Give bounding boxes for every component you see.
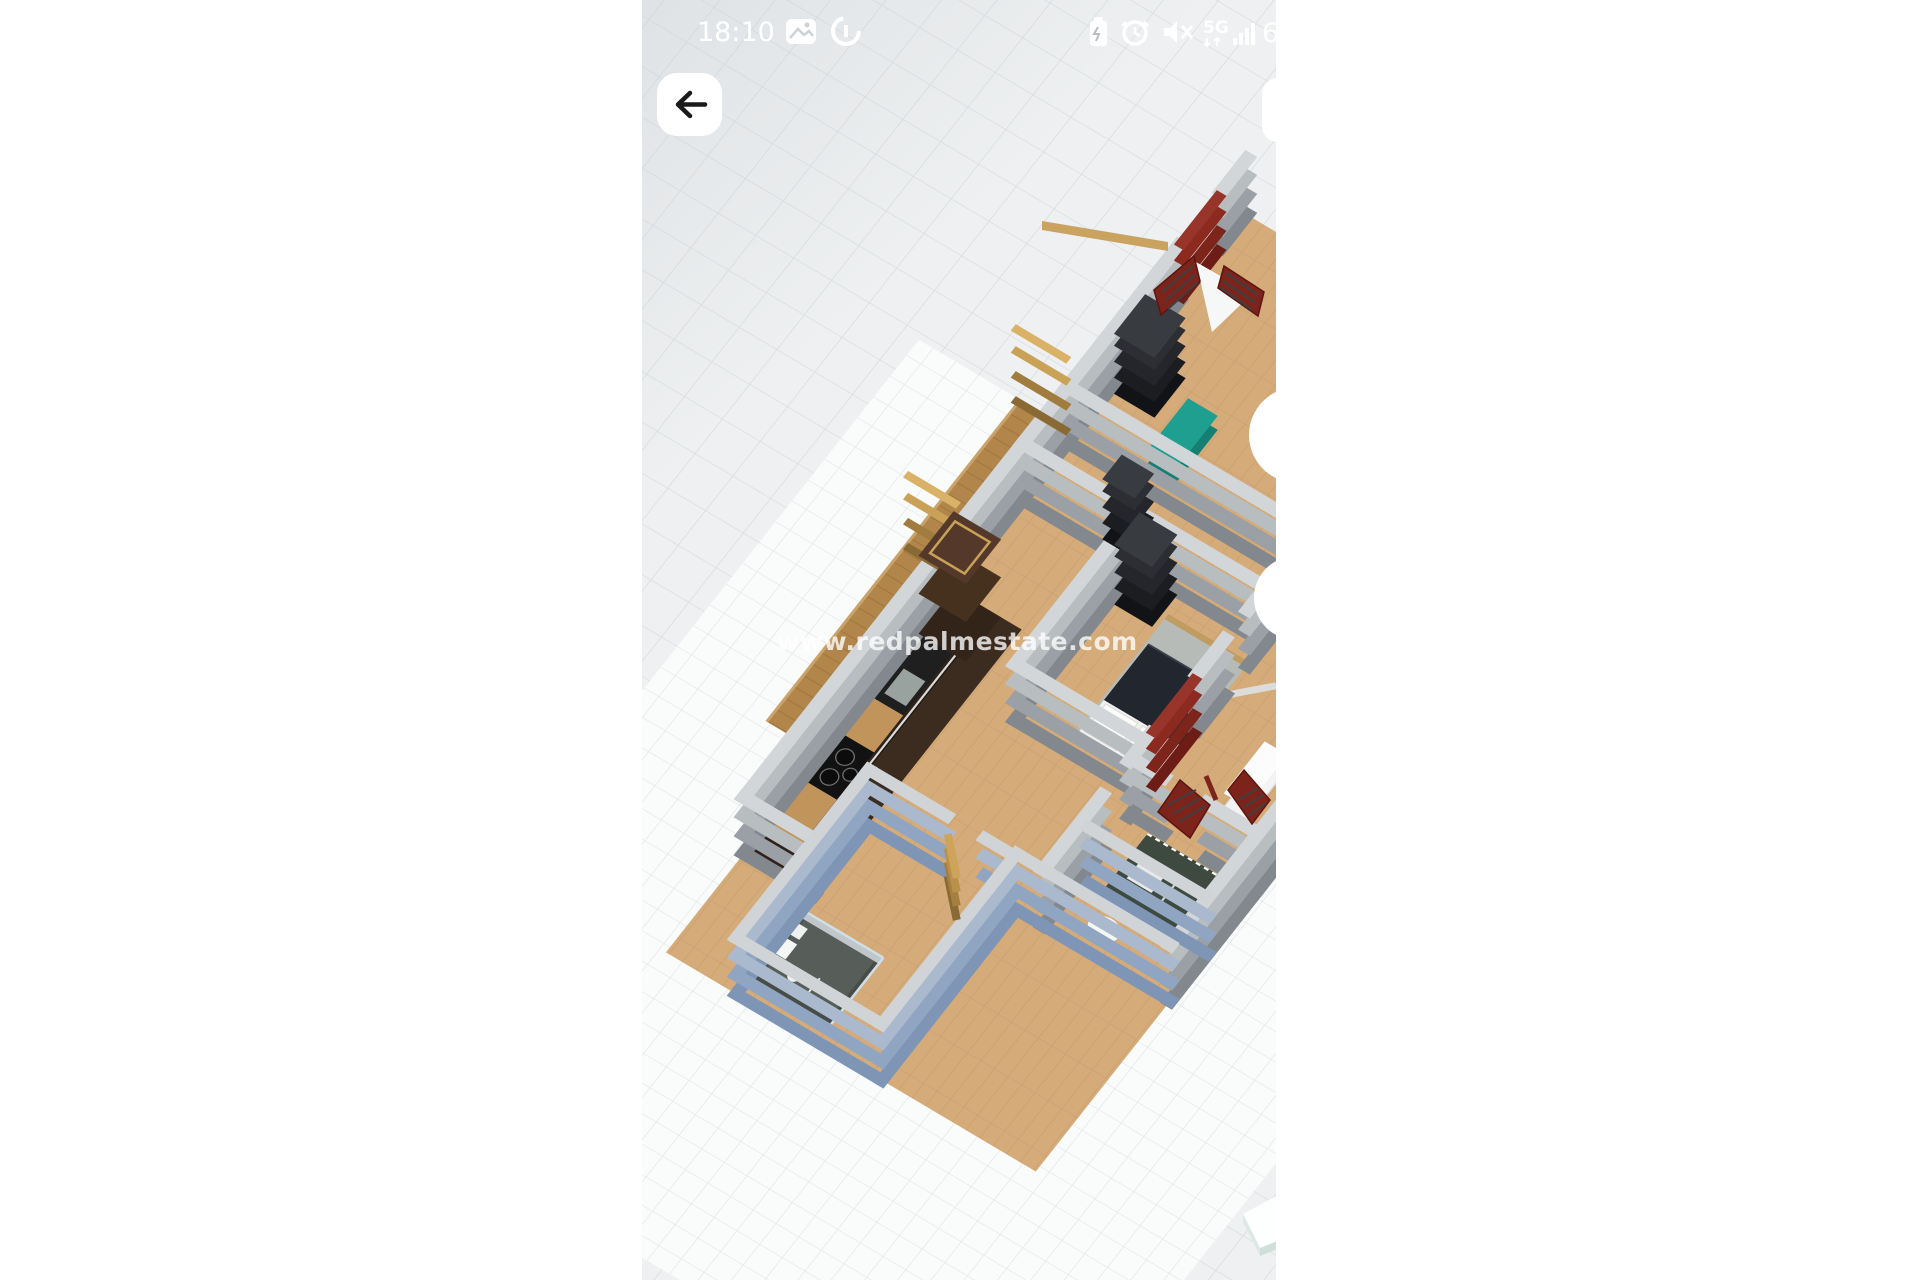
watermark: www.redpalmestate.com — [776, 627, 1137, 656]
svg-text:5G: 5G — [1203, 18, 1229, 38]
tool-circle-2[interactable] — [1254, 556, 1338, 640]
clock: 18:10 — [697, 17, 775, 48]
tool-circle-1[interactable] — [1249, 387, 1345, 483]
battery-percent: 62% — [1262, 18, 1322, 49]
gallery-icon — [786, 19, 816, 44]
battery-saver-icon — [1090, 17, 1107, 46]
page: { "status_bar": { "time": "18:10", "netw… — [0, 0, 1920, 1280]
floor-plan-screenshot: 18:10 — [0, 0, 1920, 1280]
panel-handle[interactable] — [1262, 78, 1302, 142]
back-button[interactable] — [657, 73, 722, 136]
